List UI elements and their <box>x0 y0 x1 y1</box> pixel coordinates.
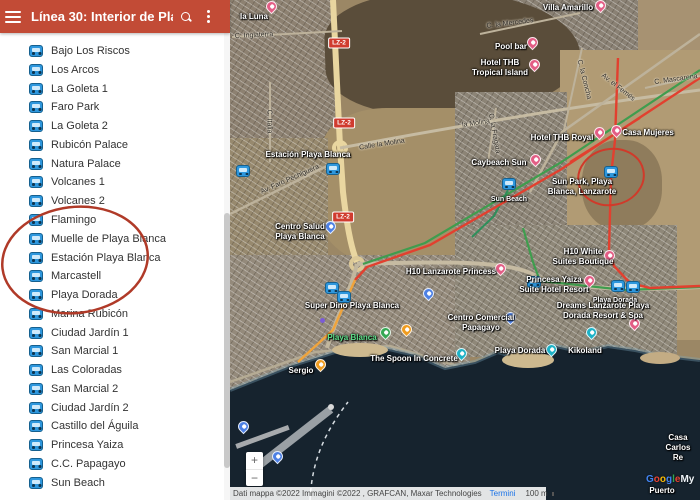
poi-label-hotel-thb-tropical[interactable]: Hotel THB Tropical Island <box>472 58 528 78</box>
stop-label: San Marcial 2 <box>51 383 118 395</box>
hamburger-menu-icon[interactable] <box>5 11 21 23</box>
stop-label: Rubicón Palace <box>51 139 128 151</box>
bus-icon <box>29 101 43 113</box>
bus-stop-marker-playa-dorada-2[interactable] <box>626 281 640 293</box>
poi-label-dreams[interactable]: Dreams Lanzarote Playa Dorada Resort & S… <box>557 301 650 321</box>
scale-label: 100 m <box>525 489 547 498</box>
stop-label: Natura Palace <box>51 158 121 170</box>
stop-list-item[interactable]: Marcastell <box>0 266 218 285</box>
stop-label: Sun Beach <box>51 477 105 489</box>
terms-link[interactable]: Termini <box>490 489 516 498</box>
bus-stop-marker-estacion[interactable] <box>326 163 340 175</box>
bus-icon <box>29 308 43 320</box>
stop-list-item[interactable]: Sun Beach <box>0 473 218 492</box>
scale-bar <box>552 492 554 496</box>
poi-label-sun-beach[interactable]: Sun Beach <box>491 195 527 205</box>
bus-icon <box>29 383 43 395</box>
bus-routes-layer <box>230 0 700 500</box>
bus-icon <box>29 289 43 301</box>
bus-icon <box>29 458 43 470</box>
stop-list-item[interactable]: Volcanes 2 <box>0 191 218 210</box>
bus-stop-marker-muelle[interactable] <box>236 165 250 177</box>
bus-icon <box>29 120 43 132</box>
map-canvas[interactable]: LZ-2 LZ-2 LZ-2 C. Inglaterra C. Italia C… <box>230 0 700 500</box>
stop-label: Marina Rubicón <box>51 308 128 320</box>
poi-label-caybeach-sun[interactable]: Caybeach Sun <box>471 158 526 168</box>
stop-list-item[interactable]: Muelle de Playa Blanca <box>0 229 218 248</box>
map-zoom-control: + − <box>246 452 263 486</box>
poi-label-estacion-playa-blanca[interactable]: Estación Playa Blanca <box>266 150 351 160</box>
google-logo: GoogleMy <box>646 474 694 485</box>
poi-label-casa-carlos[interactable]: Casa Carlos Re <box>666 433 691 463</box>
stop-list-item[interactable]: Volcanes 1 <box>0 172 218 191</box>
poi-label-villa-amarillo[interactable]: Villa Amarillo <box>543 3 593 13</box>
stop-label: Volcanes 1 <box>51 176 105 188</box>
stop-list-item[interactable]: Castillo del Águila <box>0 416 218 435</box>
poi-label-super-dino[interactable]: Super Dino Playa Blanca <box>305 301 399 311</box>
poi-label-h10-white-suites[interactable]: H10 White Suites Boutique <box>553 247 614 267</box>
bus-icon <box>29 327 43 339</box>
poi-label-princesa-yaiza[interactable]: Princesa Yaiza Suite Hotel Resort <box>519 275 588 295</box>
road-badge-lz2: LZ-2 <box>333 118 355 129</box>
bus-icon <box>29 214 43 226</box>
stop-label: Los Arcos <box>51 64 99 76</box>
bus-stop-marker-sun-beach[interactable] <box>502 178 516 190</box>
stop-list-item[interactable]: La Goleta 1 <box>0 79 218 98</box>
poi-label-cc-papagayo[interactable]: Centro Comercial Papagayo <box>448 313 515 333</box>
poi-label-hotel-thb-royal[interactable]: Hotel THB Royal <box>531 133 594 143</box>
bus-icon <box>29 45 43 57</box>
stop-label: Volcanes 2 <box>51 195 105 207</box>
stop-label: Castillo del Águila <box>51 420 138 432</box>
road-badge-lz2: LZ-2 <box>328 38 350 49</box>
bus-icon <box>29 252 43 264</box>
bus-icon <box>29 439 43 451</box>
stop-label: Estación Playa Blanca <box>51 252 160 264</box>
stop-label: Faro Park <box>51 101 99 113</box>
map-title: Línea 30: Interior de Playa... <box>31 9 173 24</box>
stop-list-item[interactable]: La Goleta 2 <box>0 116 218 135</box>
poi-label-casa-mujeres[interactable]: Casa Mujeres <box>622 128 674 138</box>
stop-list-item[interactable]: San Marcial 1 <box>0 341 218 360</box>
bus-icon <box>29 64 43 76</box>
stop-label: La Goleta 1 <box>51 83 108 95</box>
bus-icon <box>29 176 43 188</box>
stop-list-item[interactable]: Estación Playa Blanca <box>0 248 218 267</box>
bus-icon <box>29 270 43 282</box>
logo-letter: G <box>646 474 654 485</box>
stop-list-item[interactable]: Faro Park <box>0 97 218 116</box>
poi-label-playa-blanca-beach[interactable]: Playa Blanca <box>327 333 376 343</box>
stop-list-item[interactable]: Princesa Yaiza <box>0 435 218 454</box>
poi-dot-marker[interactable] <box>320 318 325 323</box>
stop-list-item[interactable]: Los Arcos <box>0 60 218 79</box>
overflow-menu-icon[interactable] <box>207 10 210 23</box>
poi-label-puerto[interactable]: Puerto <box>649 486 674 496</box>
google-my-maps-window: LZ-2 LZ-2 LZ-2 C. Inglaterra C. Italia C… <box>0 0 700 500</box>
stop-list-item[interactable]: C.C. Papagayo <box>0 454 218 473</box>
poi-label-la-luna[interactable]: la Luna <box>240 12 268 22</box>
poi-label-kikoland[interactable]: Kikoland <box>568 346 602 356</box>
stop-list-item[interactable]: Rubicón Palace <box>0 135 218 154</box>
bus-stop-marker-playa-dorada-1[interactable] <box>611 280 625 292</box>
stop-list-item[interactable]: Natura Palace <box>0 154 218 173</box>
bus-icon <box>29 139 43 151</box>
stop-label: Playa Dorada <box>51 289 118 301</box>
search-icon[interactable] <box>181 12 191 22</box>
stop-list-item[interactable]: Flamingo <box>0 210 218 229</box>
stop-label: La Goleta 2 <box>51 120 108 132</box>
bus-icon <box>29 195 43 207</box>
map-attribution: Dati mappa ©2022 Immagini ©2022 , GRAFCA… <box>230 487 546 500</box>
bus-icon <box>29 158 43 170</box>
logo-suffix: My <box>680 474 694 485</box>
stop-label: Marcastell <box>51 270 101 282</box>
stop-label: Ciudad Jardín 2 <box>51 402 129 414</box>
zoom-in-button[interactable]: + <box>246 452 263 470</box>
stop-list-item[interactable]: Ciudad Jardín 2 <box>0 398 218 417</box>
stop-list-item[interactable]: San Marcial 2 <box>0 379 218 398</box>
bus-icon <box>29 233 43 245</box>
app-header: Línea 30: Interior de Playa... <box>0 0 230 33</box>
stop-list-item[interactable]: Bajo Los Riscos <box>0 41 218 60</box>
stop-label: Muelle de Playa Blanca <box>51 233 166 245</box>
zoom-out-button[interactable]: − <box>246 470 263 487</box>
bus-icon <box>29 420 43 432</box>
stop-label: Bajo Los Riscos <box>51 45 130 57</box>
poi-label-h10-princess[interactable]: H10 Lanzarote Princess <box>406 267 496 277</box>
stops-sidebar: Bajo Los Riscos Los Arcos La Goleta 1 Fa… <box>0 33 230 500</box>
poi-label-the-spoon[interactable]: The Spoon In Concrete <box>370 354 458 364</box>
bus-icon <box>29 83 43 95</box>
poi-label-playa-dorada-beach[interactable]: Playa Dorada <box>495 346 546 356</box>
poi-label-sergio[interactable]: Sergio <box>289 366 314 376</box>
stop-label: Flamingo <box>51 214 96 226</box>
stop-label: C.C. Papagayo <box>51 458 126 470</box>
stop-label: Princesa Yaiza <box>51 439 123 451</box>
road-badge-lz2: LZ-2 <box>332 212 354 223</box>
bus-icon <box>29 477 43 489</box>
stop-list-item[interactable]: Las Coloradas <box>0 360 218 379</box>
stop-label: San Marcial 1 <box>51 345 118 357</box>
bus-icon <box>29 345 43 357</box>
poi-label-sun-park[interactable]: Sun Park, Playa Blanca, Lanzarote <box>548 177 616 197</box>
stop-label: Ciudad Jardín 1 <box>51 327 129 339</box>
sidebar-scrollbar-thumb[interactable] <box>224 213 230 468</box>
stop-label: Las Coloradas <box>51 364 122 376</box>
stop-list-item[interactable]: Ciudad Jardín 1 <box>0 323 218 342</box>
poi-label-centro-salud[interactable]: Centro Salud Playa Blanca <box>275 222 325 242</box>
poi-label-pool-bar[interactable]: Pool bar <box>495 42 527 52</box>
stop-list-item[interactable]: Playa Dorada <box>0 285 218 304</box>
stop-list-item[interactable]: Marina Rubicón <box>0 304 218 323</box>
bus-icon <box>29 364 43 376</box>
attribution-text: Dati mappa ©2022 Immagini ©2022 , GRAFCA… <box>233 489 482 498</box>
bus-icon <box>29 402 43 414</box>
street-label: C. Italia <box>266 110 273 134</box>
